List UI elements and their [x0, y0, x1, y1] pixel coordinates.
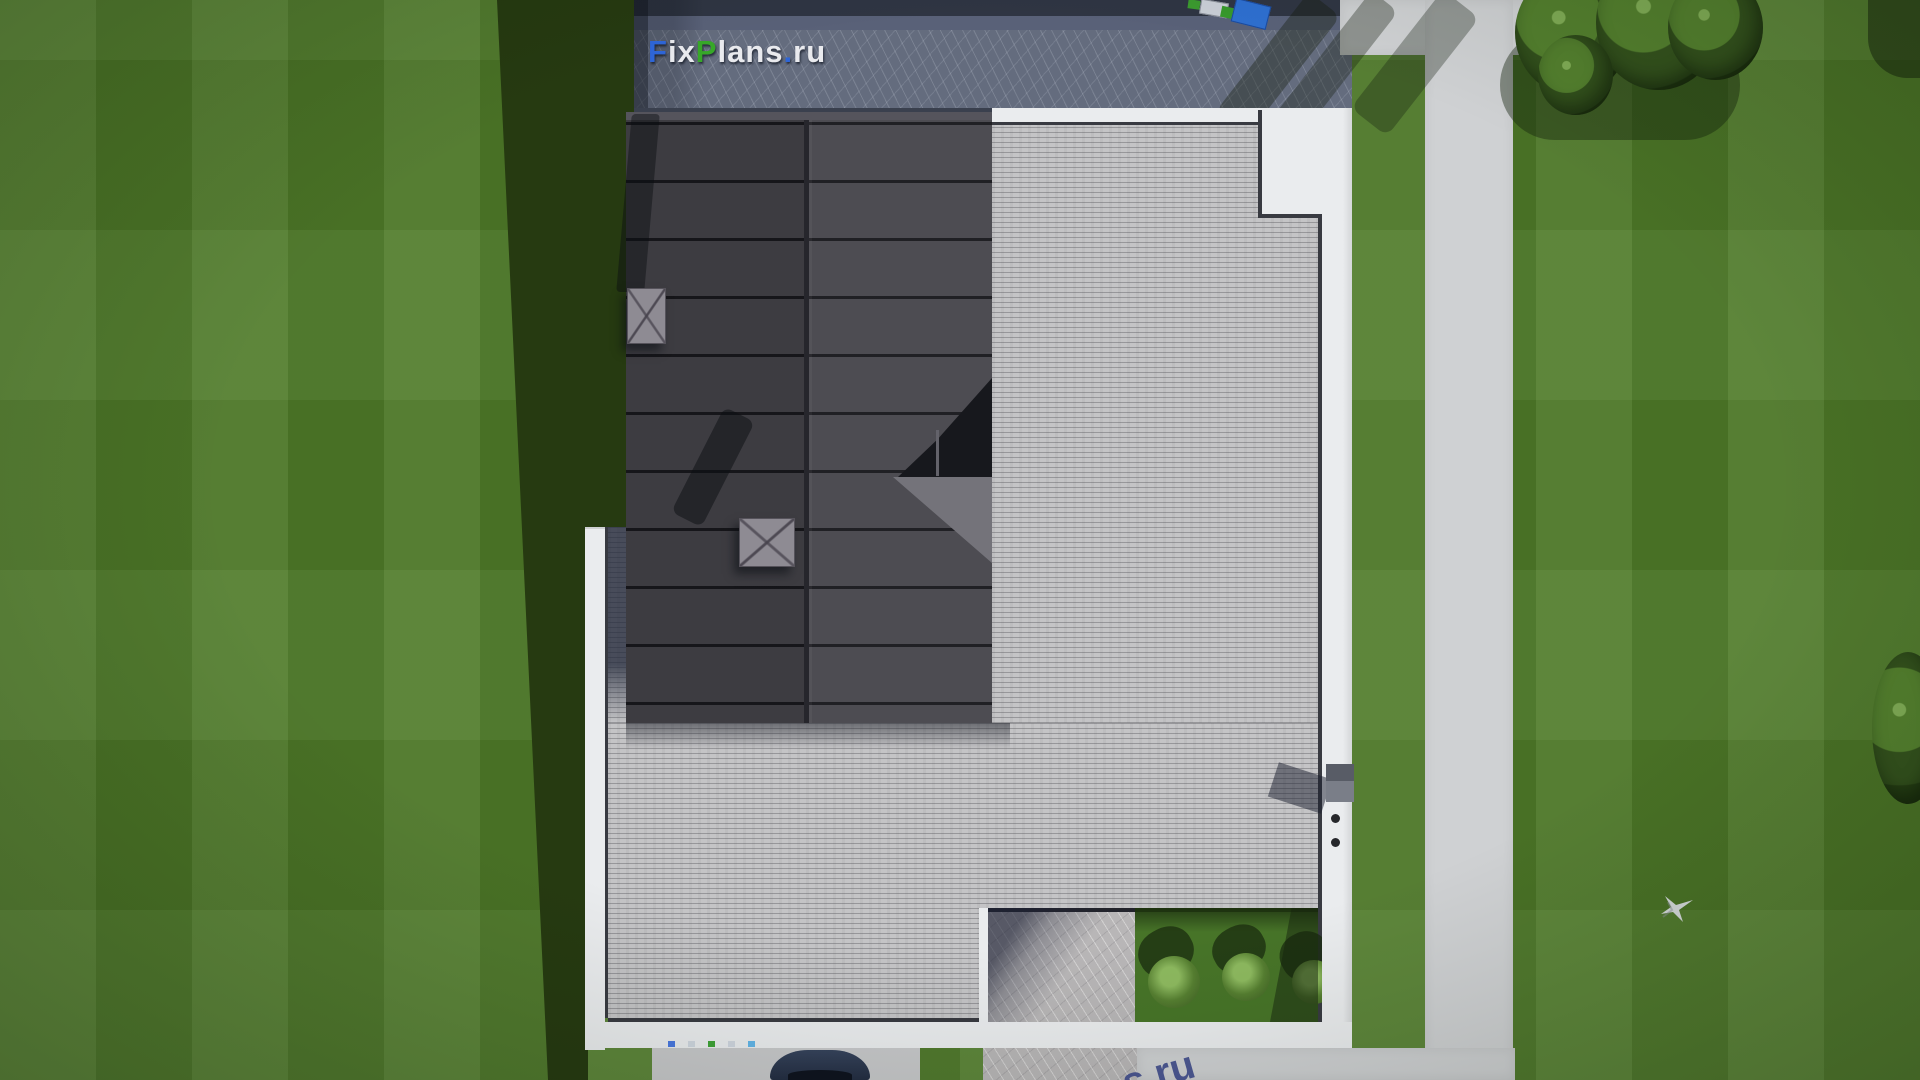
vent-dot	[1331, 814, 1340, 823]
bottom-watermark-text: s.ru	[1117, 1048, 1200, 1080]
site-watermark: FixPlans.ru	[648, 34, 826, 70]
watermark-speck	[748, 1041, 755, 1047]
vent-dot	[1331, 838, 1340, 847]
logo-letter: lans	[717, 34, 783, 69]
tree-right-edge	[1872, 652, 1920, 804]
bottom-watermark-clip: s.ru	[1100, 1048, 1360, 1080]
right-walkway	[1425, 0, 1513, 1080]
metal-roof	[626, 112, 992, 729]
logo-letter: ru	[793, 34, 826, 69]
watermark-speck	[688, 1041, 695, 1047]
aerial-house-render: FixPlans.ru	[0, 0, 1920, 1080]
deck-seam	[605, 527, 608, 1018]
parapet-west	[585, 527, 605, 1050]
chimney	[627, 288, 666, 344]
watermark-speck	[668, 1041, 675, 1047]
deck-seam	[992, 122, 1258, 125]
bird	[1655, 890, 1699, 930]
watermark-speck	[708, 1041, 715, 1047]
car-windshield	[788, 1070, 852, 1080]
dormer-mullion	[936, 430, 939, 476]
roof-shadow-on-deck	[626, 723, 1010, 749]
bird-icon	[1655, 890, 1699, 930]
patio-shadow	[988, 908, 1135, 1022]
logo-letter: P	[696, 34, 718, 69]
patio-edge-strip	[979, 908, 988, 1022]
logo-letter: .	[784, 34, 794, 69]
bush	[1222, 953, 1270, 1001]
bush	[1148, 956, 1200, 1008]
chimney	[739, 518, 795, 567]
logo-letter: ix	[668, 34, 696, 69]
parapet-south	[585, 1022, 1352, 1048]
parapet-vent	[1326, 764, 1354, 802]
logo-letters: FixPlans.ru	[648, 34, 826, 69]
truck-green-cab	[1187, 0, 1200, 10]
tree	[1538, 35, 1613, 115]
logo-letter: F	[648, 34, 668, 69]
parapet-east	[1322, 108, 1352, 1048]
corner-tree-shadow	[1868, 0, 1920, 78]
watermark-speck	[728, 1041, 735, 1047]
